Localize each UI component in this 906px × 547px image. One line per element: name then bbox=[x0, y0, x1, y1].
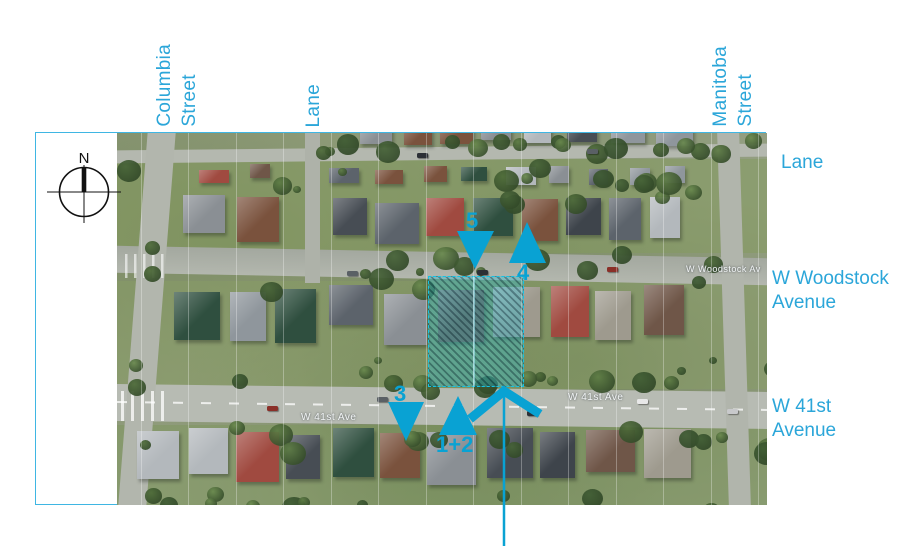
street-label-lane-right: Lane bbox=[781, 151, 823, 175]
compass-north-label: N bbox=[79, 150, 90, 167]
view-marker-3-label: 3 bbox=[394, 381, 406, 407]
view-marker-4-label: 4 bbox=[517, 260, 529, 286]
street-label-41st: W 41st Avenue bbox=[772, 395, 836, 443]
street-label-lane-top: Lane bbox=[301, 84, 326, 127]
view-marker-5-label: 5 bbox=[466, 208, 478, 234]
site-aerial-sheet: Columbia Street Lane Manitoba Street Sit… bbox=[0, 0, 906, 547]
view-marker-1-2-label: 1+2 bbox=[436, 432, 473, 458]
street-label-manitoba: Manitoba Street bbox=[708, 46, 758, 127]
photo-road-label-41st-west: W 41st Ave bbox=[301, 412, 356, 423]
north-compass-icon: N bbox=[43, 142, 125, 230]
photo-road-label-41st-east: W 41st Ave bbox=[568, 392, 623, 403]
street-label-columbia: Columbia Street bbox=[152, 44, 202, 127]
photo-road-label-woodstock: W Woodstock Av bbox=[686, 264, 761, 274]
site-boundary-overlay bbox=[428, 276, 524, 387]
street-label-woodstock: W Woodstock Avenue bbox=[772, 267, 889, 315]
